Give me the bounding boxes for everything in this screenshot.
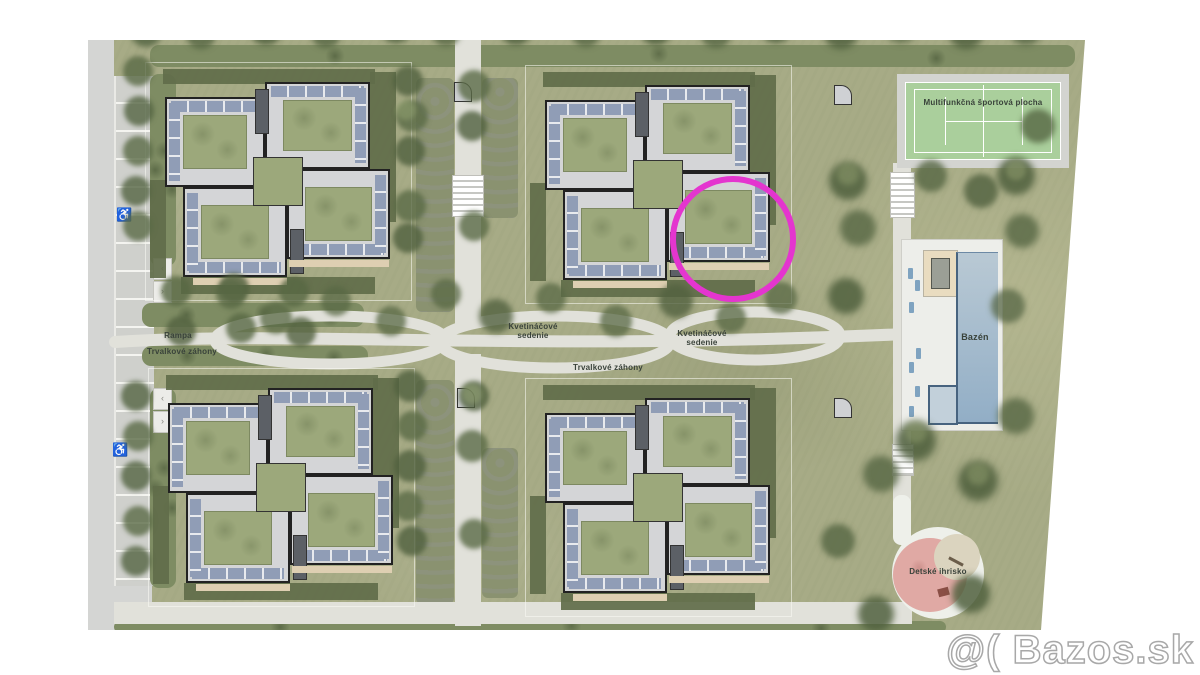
courtyard bbox=[283, 100, 352, 151]
sun-lounger bbox=[915, 386, 920, 397]
stair-core bbox=[258, 395, 272, 440]
balcony-strip bbox=[669, 576, 769, 583]
solar-panels bbox=[567, 196, 578, 274]
stair-core bbox=[670, 545, 684, 590]
balcony-strip bbox=[292, 566, 392, 573]
solar-panels bbox=[375, 175, 386, 253]
center-courtyard bbox=[253, 157, 303, 206]
label-playground: Detské ihrisko bbox=[898, 567, 978, 576]
courtyard bbox=[685, 503, 752, 557]
stair-core bbox=[635, 405, 649, 450]
solar-panels bbox=[187, 193, 198, 271]
courtyard bbox=[183, 115, 247, 169]
kids-pool bbox=[928, 385, 958, 425]
site-plan: ♿ ♿ ‹ › ‹ › bbox=[0, 0, 1200, 675]
highlight-circle bbox=[670, 176, 796, 302]
corner-canopy bbox=[834, 85, 852, 105]
courtyard bbox=[563, 118, 627, 172]
label-sports-field: Multifunkčná športová plocha bbox=[905, 98, 1061, 107]
garden-patch bbox=[150, 180, 166, 278]
sun-lounger bbox=[909, 362, 914, 373]
quad-building bbox=[645, 398, 750, 485]
solar-panels bbox=[171, 101, 259, 112]
sun-lounger bbox=[915, 280, 920, 291]
courtyard bbox=[663, 416, 732, 467]
garden-patch bbox=[530, 183, 546, 281]
garden-patch bbox=[153, 486, 169, 584]
label-trvalkove-zahony-left: Trvalkové záhony bbox=[132, 347, 232, 356]
courtyard bbox=[305, 187, 372, 241]
courtyard bbox=[663, 103, 732, 154]
sun-lounger bbox=[916, 348, 921, 359]
pergola bbox=[923, 250, 958, 297]
corner-canopy bbox=[454, 82, 472, 102]
stairs bbox=[892, 444, 914, 476]
solar-panels bbox=[551, 104, 639, 115]
solar-panels bbox=[551, 417, 639, 428]
label-trvalkove-zahony-mid: Trvalkové záhony bbox=[558, 363, 658, 372]
stair-core bbox=[635, 92, 649, 137]
courtyard bbox=[581, 521, 649, 575]
solar-panels bbox=[293, 244, 384, 255]
stairs bbox=[452, 175, 484, 217]
solar-panels bbox=[169, 103, 180, 181]
solar-panels bbox=[192, 568, 284, 579]
solar-panels bbox=[651, 402, 744, 413]
pergola-table bbox=[931, 258, 950, 289]
solar-panels bbox=[296, 550, 387, 561]
solar-panels bbox=[651, 89, 744, 100]
solar-panels bbox=[378, 481, 389, 559]
balcony-strip bbox=[196, 584, 290, 591]
site-area: ♿ ♿ ‹ › ‹ › bbox=[0, 0, 1200, 675]
solar-panels bbox=[189, 262, 281, 273]
building-cluster bbox=[165, 82, 392, 281]
stair-core bbox=[293, 535, 307, 580]
corner-canopy bbox=[834, 398, 852, 418]
sun-lounger bbox=[908, 268, 913, 279]
building-cluster bbox=[545, 398, 772, 597]
sun-lounger bbox=[909, 302, 914, 313]
sports-field bbox=[905, 82, 1061, 160]
garden-patch bbox=[530, 496, 546, 594]
solar-panels bbox=[569, 578, 661, 589]
solar-panels bbox=[358, 394, 369, 469]
solar-panels bbox=[569, 265, 661, 276]
label-kvetinacove-sedenie-1: Kvetináčové sedenie bbox=[498, 322, 568, 340]
solar-panels bbox=[271, 86, 364, 97]
solar-panels bbox=[755, 491, 766, 569]
courtyard bbox=[204, 511, 272, 565]
label-rampa: Rampa bbox=[148, 331, 208, 340]
courtyard bbox=[563, 431, 627, 485]
watermark: @( Bazos.sk bbox=[946, 628, 1194, 673]
stairs bbox=[890, 172, 915, 218]
balcony-strip bbox=[573, 281, 667, 288]
center-courtyard bbox=[256, 463, 306, 512]
sun-lounger bbox=[909, 406, 914, 417]
center-courtyard bbox=[633, 160, 683, 209]
solar-panels bbox=[174, 407, 262, 418]
label-pool: Bazén bbox=[954, 333, 996, 342]
stair-core bbox=[290, 229, 304, 274]
solar-panels bbox=[549, 419, 560, 497]
courtyard bbox=[201, 205, 269, 259]
courtyard bbox=[186, 421, 250, 475]
quad-building bbox=[168, 403, 268, 493]
stair-core bbox=[255, 89, 269, 134]
solar-panels bbox=[355, 88, 366, 163]
quad-building bbox=[265, 82, 370, 169]
solar-panels bbox=[735, 404, 746, 479]
solar-panels bbox=[274, 392, 367, 403]
balcony-strip bbox=[193, 278, 287, 285]
quad-building bbox=[545, 413, 645, 503]
corner-canopy bbox=[457, 388, 475, 408]
quad-building bbox=[645, 85, 750, 172]
label-kvetinacove-sedenie-2: Kvetináčové sedenie bbox=[667, 329, 737, 347]
quad-building bbox=[545, 100, 645, 190]
courtyard bbox=[308, 493, 375, 547]
quad-building bbox=[268, 388, 373, 475]
courtyard bbox=[581, 208, 649, 262]
balcony-strip bbox=[289, 260, 389, 267]
quad-building bbox=[165, 97, 265, 187]
solar-panels bbox=[549, 106, 560, 184]
solar-panels bbox=[735, 91, 746, 166]
balcony-strip bbox=[573, 594, 667, 601]
courtyard bbox=[286, 406, 355, 457]
solar-panels bbox=[190, 499, 201, 577]
solar-panels bbox=[567, 509, 578, 587]
center-courtyard bbox=[633, 473, 683, 522]
building-cluster bbox=[168, 388, 395, 587]
solar-panels bbox=[673, 560, 764, 571]
solar-panels bbox=[172, 409, 183, 487]
